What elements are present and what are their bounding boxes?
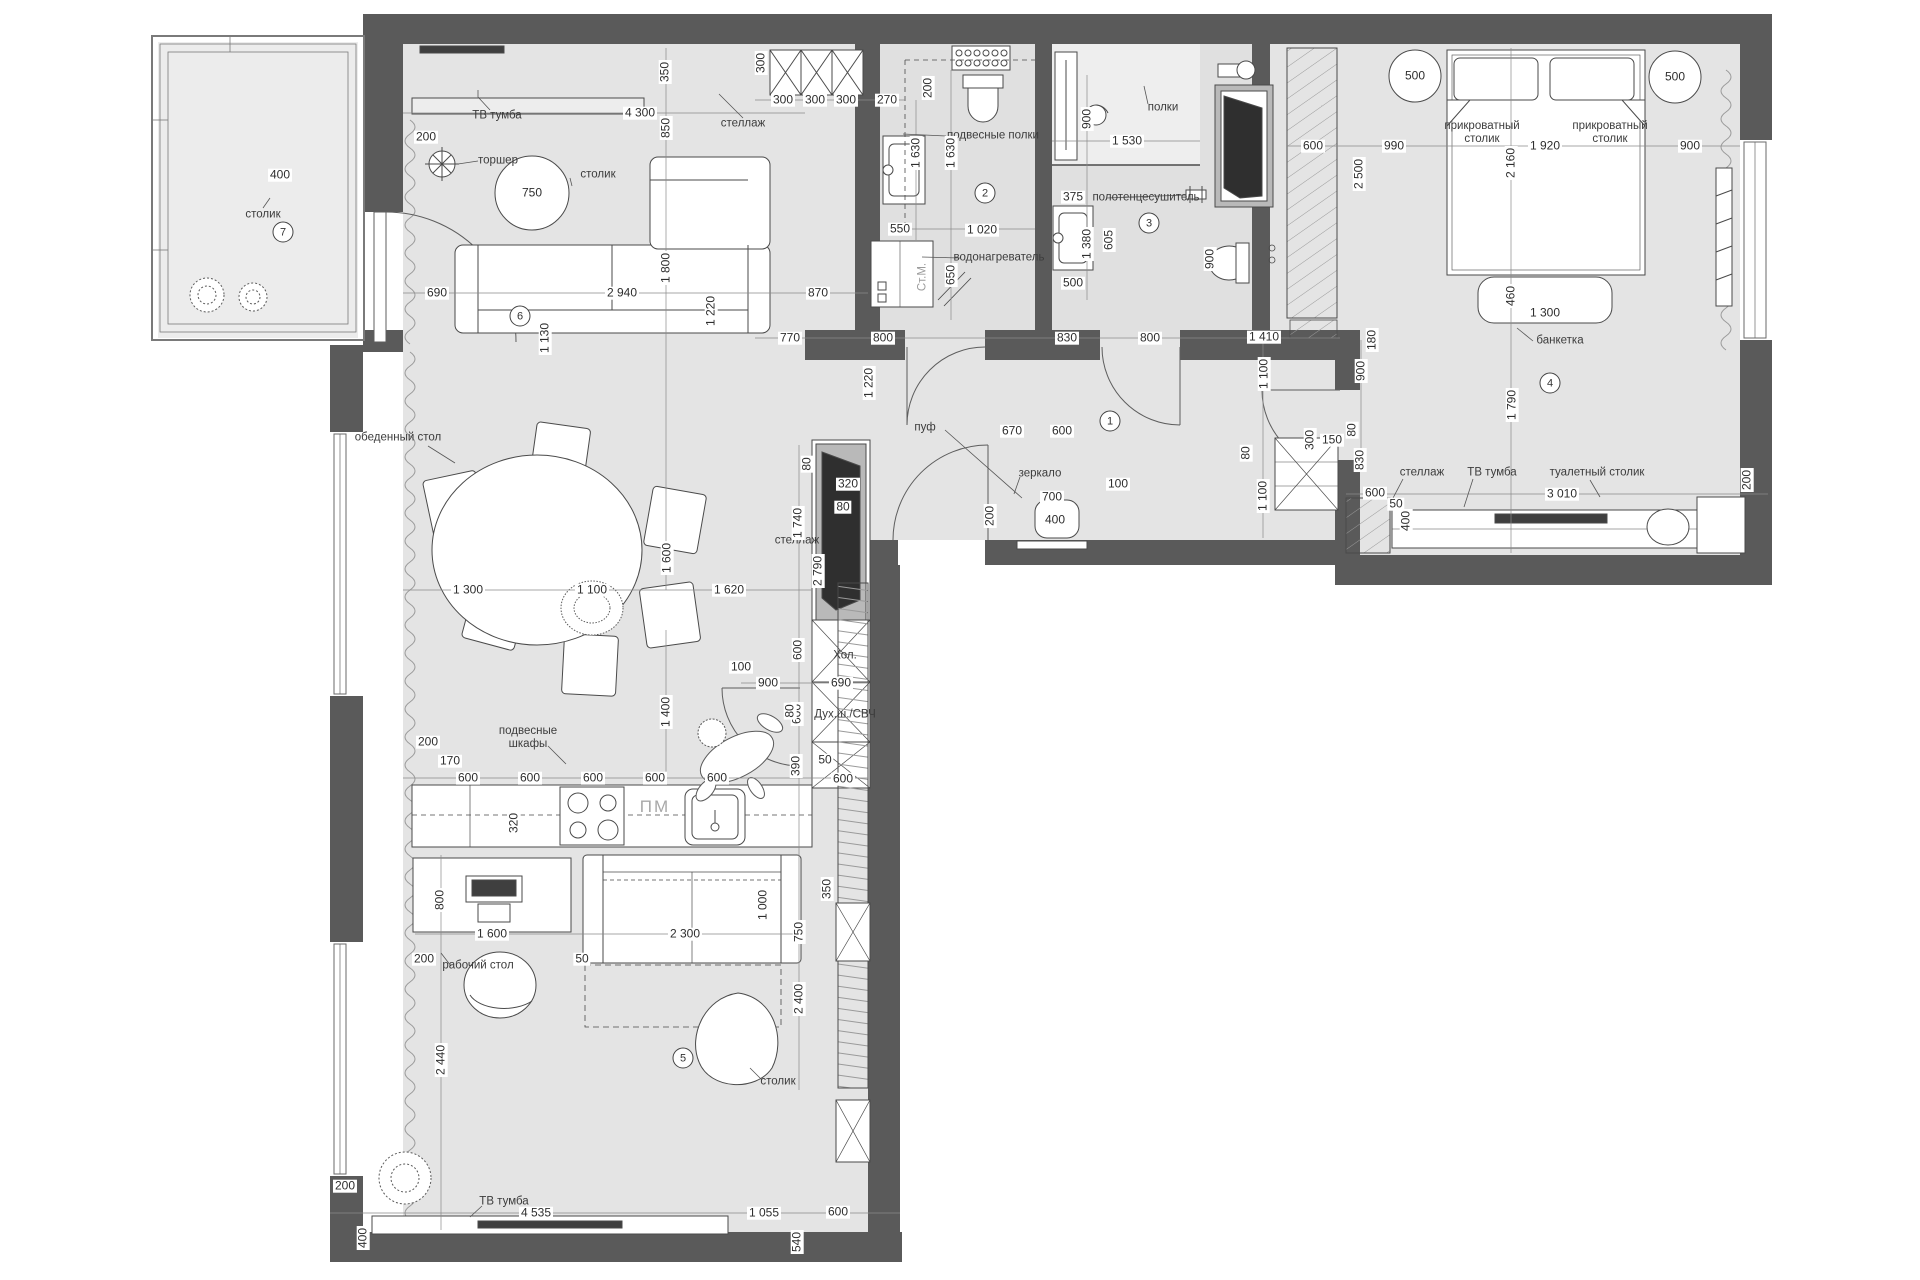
dim-label: 350: [821, 877, 834, 901]
text-label: Ст.М.: [916, 263, 929, 291]
dim-label: 390: [790, 754, 803, 778]
dim-label: 4 300: [623, 107, 657, 120]
corridor-shelving: [836, 583, 870, 1162]
dim-label: 200: [1741, 468, 1754, 492]
dim-label: 900: [1081, 107, 1094, 131]
sink-icon: [685, 789, 745, 845]
room-number-7: 7: [273, 222, 294, 243]
text-label: прикроватный столик: [1444, 120, 1519, 146]
text-label: полки: [1148, 101, 1179, 114]
tv-icon: [420, 46, 504, 53]
dim-label: 830: [1354, 448, 1367, 472]
dim-label: 350: [659, 60, 672, 84]
dim-label: 850: [660, 116, 673, 140]
text-label: прикроватный столик: [1572, 120, 1647, 146]
dim-label: 200: [416, 736, 440, 749]
dim-label: 670: [1000, 425, 1024, 438]
dim-label: 300: [1304, 428, 1317, 452]
room-number-1: 1: [1100, 411, 1121, 432]
bed-icon: [1447, 50, 1645, 275]
dim-label: 1 410: [1247, 331, 1281, 344]
dim-label: 900: [1204, 247, 1217, 271]
dim-label: 100: [729, 661, 753, 674]
dim-label: 375: [1061, 191, 1085, 204]
dim-label: 1 020: [965, 224, 999, 237]
dim-label: 2 300: [668, 928, 702, 941]
text-label: ТВ тумба: [1467, 466, 1516, 479]
dim-label: 50: [816, 754, 833, 767]
dim-label: 4 535: [519, 1207, 553, 1220]
text-label: подвесные шкафы: [499, 725, 557, 751]
dim-label: 80: [784, 702, 797, 719]
text-label: рабочий стол: [442, 959, 513, 972]
dim-label: 600: [518, 772, 542, 785]
dim-label: 990: [1382, 140, 1406, 153]
dim-label: 80: [1240, 444, 1253, 461]
dim-label: 1 220: [705, 294, 718, 328]
dim-label: 2 160: [1505, 146, 1518, 180]
dim-label: 1 920: [1528, 140, 1562, 153]
dim-label: 870: [806, 287, 830, 300]
dim-label: 1 220: [863, 366, 876, 400]
dim-label: 1 300: [451, 584, 485, 597]
text-label: ТВ тумба: [472, 109, 521, 122]
dim-label: 900: [1355, 359, 1368, 383]
dim-label: 200: [922, 76, 935, 100]
dim-label: 1 630: [945, 136, 958, 170]
dim-label: 1 600: [475, 928, 509, 941]
dim-label: 600: [705, 772, 729, 785]
dim-label: 900: [756, 677, 780, 690]
dim-label: 500: [1061, 277, 1085, 290]
dim-label: 100: [1106, 478, 1130, 491]
dim-label: 600: [1363, 487, 1387, 500]
dim-label: 1 400: [660, 695, 673, 729]
dim-label: 600: [456, 772, 480, 785]
dim-label: 600: [643, 772, 667, 785]
text-label: пуф: [914, 421, 935, 434]
mirror-icon: [1017, 541, 1087, 549]
dim-label: 300: [803, 94, 827, 107]
dim-label: 200: [414, 131, 438, 144]
dim-label: 320: [508, 811, 521, 835]
chair-icon: [643, 486, 707, 554]
dim-label: 500: [1403, 70, 1427, 83]
radiator-icon: [1716, 168, 1732, 306]
text-label: стеллаж: [721, 117, 765, 130]
text-label: столик: [580, 168, 615, 181]
room-number-6: 6: [510, 306, 531, 327]
dim-label: 1 530: [1110, 135, 1144, 148]
dim-label: 600: [1301, 140, 1325, 153]
pillow-icon: [1550, 58, 1634, 100]
text-label: банкетка: [1536, 334, 1583, 347]
dim-label: 400: [357, 1226, 370, 1250]
dim-label: 600: [792, 638, 805, 662]
dim-label: 500: [1663, 71, 1687, 84]
dim-label: 1 800: [660, 251, 673, 285]
dim-label: 2 400: [793, 982, 806, 1016]
dim-label: 750: [520, 187, 544, 200]
text-label: Хол.: [833, 649, 857, 662]
dim-label: 1 620: [712, 584, 746, 597]
dim-label: 150: [1320, 434, 1344, 447]
dressing-hatch: [1290, 320, 1337, 338]
dim-label: 80: [801, 455, 814, 472]
text-label: туалетный столик: [1550, 466, 1645, 479]
dim-label: 1 055: [747, 1207, 781, 1220]
text-label: Дух.ш./СВЧ: [814, 708, 875, 721]
text-label: стеллаж: [1400, 466, 1444, 479]
dim-label: 1 790: [1506, 388, 1519, 422]
dim-label: 80: [834, 501, 851, 514]
room-number-4: 4: [1540, 373, 1561, 394]
room-number-2: 2: [975, 183, 996, 204]
dim-label: 2 790: [812, 554, 825, 588]
dim-label: 1 130: [539, 321, 552, 355]
dim-label: 540: [791, 1230, 804, 1254]
dim-label: 320: [836, 478, 860, 491]
dim-label: 1 630: [910, 136, 923, 170]
dim-label: 600: [826, 1206, 850, 1219]
dim-label: 50: [573, 953, 590, 966]
dim-label: 770: [778, 332, 802, 345]
dim-label: 300: [755, 51, 768, 75]
floor-plan-drawing: [0, 0, 1920, 1280]
dim-label: 300: [771, 94, 795, 107]
dim-label: 200: [412, 953, 436, 966]
dim-label: 80: [1346, 421, 1359, 438]
dim-label: 800: [434, 888, 447, 912]
dim-label: 400: [1400, 509, 1413, 533]
dim-label: 400: [268, 169, 292, 182]
text-label: обеденный стол: [355, 431, 441, 444]
dim-label: 50: [1387, 498, 1404, 511]
dim-label: 1 380: [1081, 227, 1094, 261]
dim-label: 460: [1505, 284, 1518, 308]
cooktop-icon: [560, 787, 624, 845]
dim-label: 1 100: [575, 584, 609, 597]
dim-label: 180: [1366, 328, 1379, 352]
dim-label: 300: [834, 94, 858, 107]
dim-label: 690: [829, 677, 853, 690]
dim-label: 800: [871, 332, 895, 345]
dim-label: 2 440: [435, 1043, 448, 1077]
text-label: торшер: [478, 154, 518, 167]
floor-plan: 2004 3003508503003003003002702006902 940…: [0, 0, 1920, 1280]
text-label: зеркало: [1019, 467, 1062, 480]
text-label: столик: [760, 1075, 795, 1088]
dim-label: 270: [875, 94, 899, 107]
dim-label: 1 100: [1257, 479, 1270, 513]
dim-label: 200: [333, 1180, 357, 1193]
dim-label: 605: [1103, 228, 1116, 252]
chair-icon: [561, 634, 618, 697]
dim-label: 700: [1040, 491, 1064, 504]
dim-label: 600: [1050, 425, 1074, 438]
dim-label: 800: [1138, 332, 1162, 345]
dim-label: 830: [1055, 332, 1079, 345]
text-label: подвесные полки: [947, 129, 1039, 142]
dim-label: 1 100: [1258, 357, 1271, 391]
dim-label: 2 940: [605, 287, 639, 300]
wardrobe-hatch: [1287, 48, 1337, 318]
text-label: полотенцесушитель: [1092, 191, 1199, 204]
dim-label: 1 600: [661, 541, 674, 575]
dim-label: 2 500: [1353, 157, 1366, 191]
dim-label: 1 740: [792, 506, 805, 540]
text-label: ПМ: [640, 797, 670, 817]
dim-label: 750: [793, 920, 806, 944]
text-label: водонагреватель: [954, 251, 1045, 264]
shelving-unit-icon: [770, 50, 863, 95]
text-label: столик: [245, 208, 280, 221]
dim-label: 170: [438, 755, 462, 768]
room-number-5: 5: [673, 1048, 694, 1069]
vent-grill-icon: [952, 46, 1010, 70]
dim-label: 400: [1043, 514, 1067, 527]
dim-label: 690: [425, 287, 449, 300]
chair-icon: [639, 582, 701, 649]
dim-label: 550: [888, 223, 912, 236]
dim-label: 650: [945, 263, 958, 287]
room-number-3: 3: [1139, 213, 1160, 234]
dim-label: 600: [581, 772, 605, 785]
dim-label: 3 010: [1545, 488, 1579, 501]
bedroom-shelving-icon: [1346, 498, 1390, 553]
dim-label: 600: [831, 773, 855, 786]
dim-label: 1 000: [757, 888, 770, 922]
dim-label: 900: [1678, 140, 1702, 153]
pillow-icon: [1454, 58, 1538, 100]
dim-label: 200: [984, 504, 997, 528]
dim-label: 1 300: [1528, 307, 1562, 320]
